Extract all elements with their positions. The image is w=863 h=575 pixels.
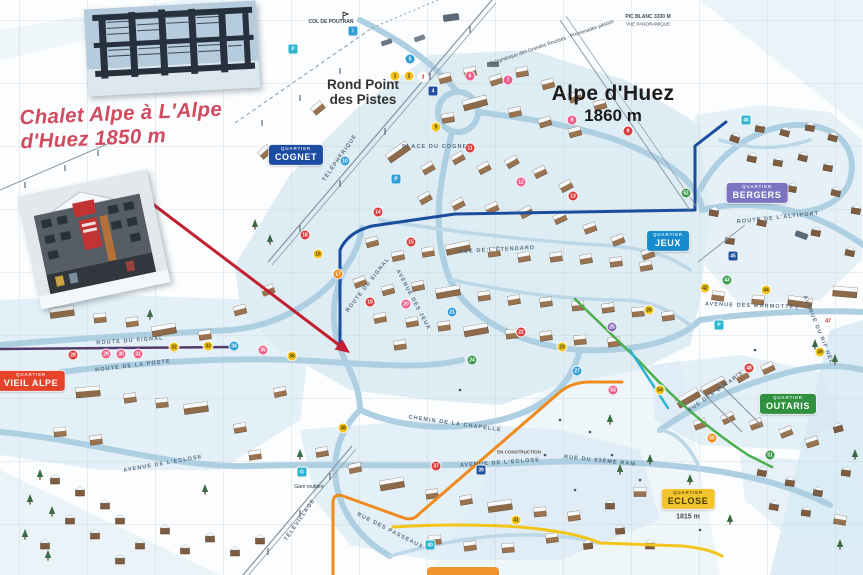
village-map: ROUTE DU SIGNALROUTE DU SIGNALROUTE DE L… — [0, 0, 863, 575]
building — [549, 252, 562, 263]
building — [574, 335, 587, 345]
building — [248, 450, 261, 461]
building — [94, 313, 107, 323]
building — [459, 495, 472, 506]
building — [601, 303, 614, 314]
building — [711, 291, 724, 302]
building — [89, 435, 102, 446]
building — [198, 330, 211, 341]
building — [833, 286, 858, 298]
building — [634, 488, 646, 497]
building — [156, 398, 169, 408]
building — [539, 331, 552, 342]
building — [54, 427, 67, 437]
building — [437, 321, 450, 332]
building — [567, 511, 580, 522]
chalet-structure-photo-art — [84, 1, 260, 97]
building — [463, 541, 476, 552]
building — [639, 261, 652, 272]
building — [233, 423, 246, 434]
building — [405, 317, 418, 328]
building — [515, 67, 528, 78]
building — [545, 533, 558, 544]
building — [421, 247, 434, 258]
building — [506, 329, 519, 339]
building — [632, 307, 645, 317]
chalet-structure-photo — [84, 1, 260, 97]
building — [534, 507, 547, 517]
building — [752, 295, 765, 305]
building — [539, 297, 552, 308]
building — [609, 257, 622, 268]
building — [393, 340, 406, 351]
building — [833, 515, 846, 526]
building — [315, 447, 328, 458]
building — [507, 295, 520, 306]
building — [441, 113, 454, 124]
building — [123, 393, 136, 404]
building — [76, 386, 101, 398]
partial-bottom-badge — [427, 567, 499, 575]
building — [429, 535, 442, 545]
building — [502, 543, 515, 553]
building — [125, 317, 138, 328]
building — [661, 311, 674, 322]
building — [487, 247, 500, 258]
building — [517, 252, 530, 263]
building — [477, 291, 490, 302]
building — [579, 254, 592, 265]
chalet-annotation: Chalet Alpe à L'Alpe d'Huez 1850 m — [19, 98, 223, 154]
